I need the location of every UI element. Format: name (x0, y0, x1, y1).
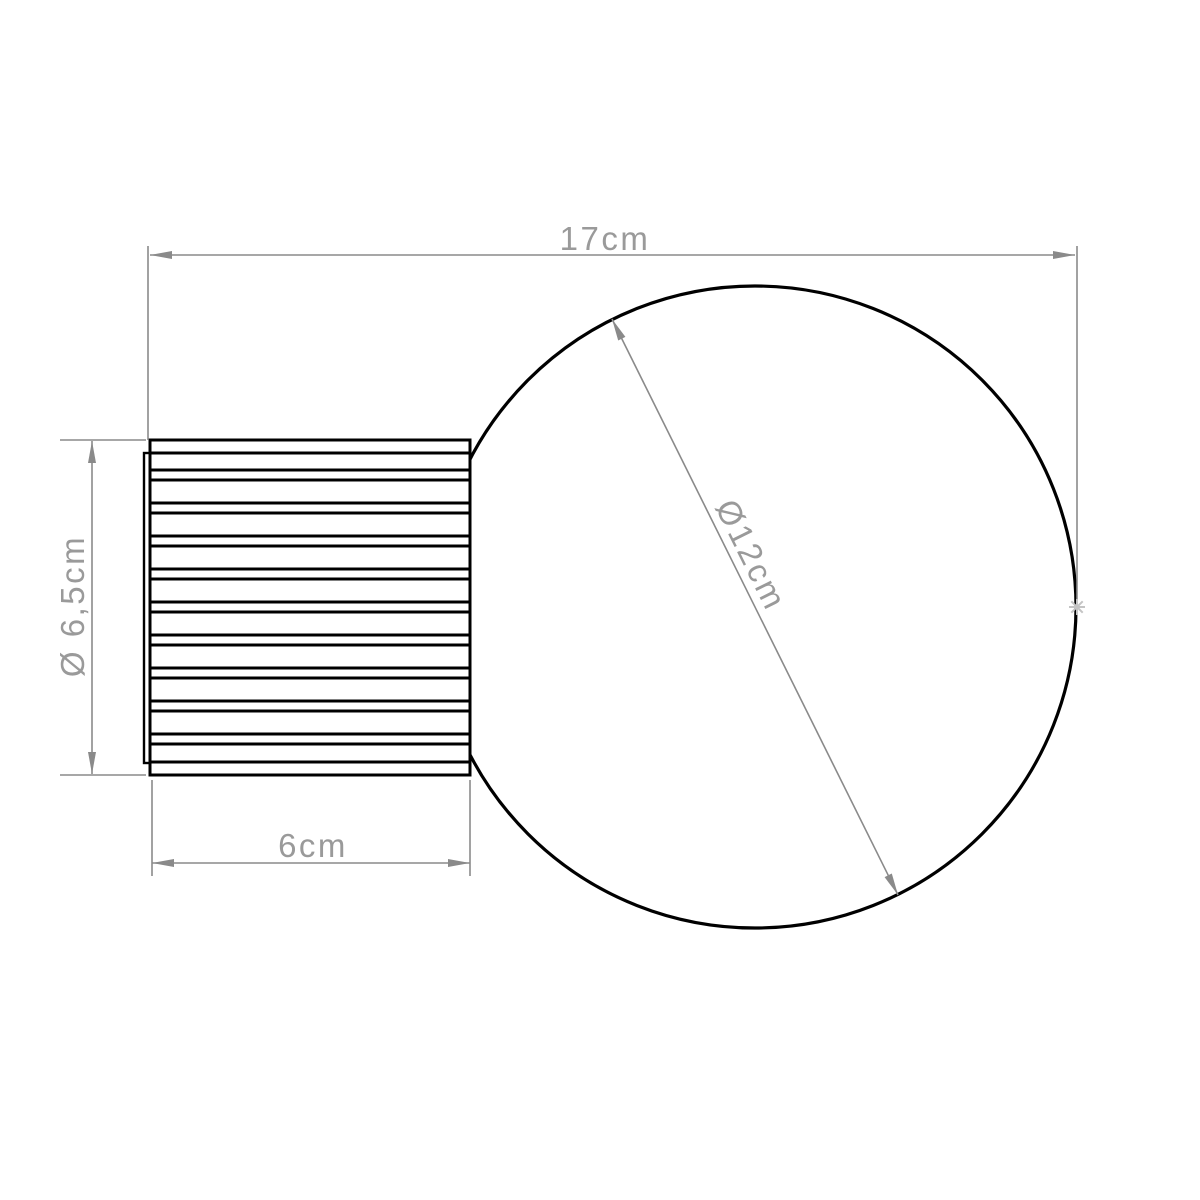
arrowhead-right (448, 859, 470, 867)
dimension-label-total-width: 17cm (560, 220, 651, 257)
arrowhead-bottom (88, 752, 96, 774)
dimension-line (612, 319, 898, 895)
dimension-label-base-width: 6cm (278, 827, 348, 864)
dimension-globe-diameter: Ø12cm (612, 319, 898, 895)
arrowhead-top (88, 441, 96, 463)
drawing-page: 17cm Ø12cm Ø 6,5cm (0, 0, 1200, 1200)
arrowhead-left (150, 251, 172, 259)
base-body (144, 440, 470, 775)
dimension-base-height: Ø 6,5cm (54, 440, 146, 775)
endpoint-marker (1069, 599, 1085, 615)
arrowhead-upper (612, 319, 625, 341)
technical-drawing: 17cm Ø12cm Ø 6,5cm (0, 0, 1200, 1200)
base-shell (150, 440, 470, 775)
arrowhead-lower (885, 874, 898, 896)
dimension-label-base-height: Ø 6,5cm (54, 535, 91, 677)
arrowhead-left (152, 859, 174, 867)
dimension-base-width: 6cm (152, 780, 470, 876)
arrowhead-right (1053, 251, 1075, 259)
